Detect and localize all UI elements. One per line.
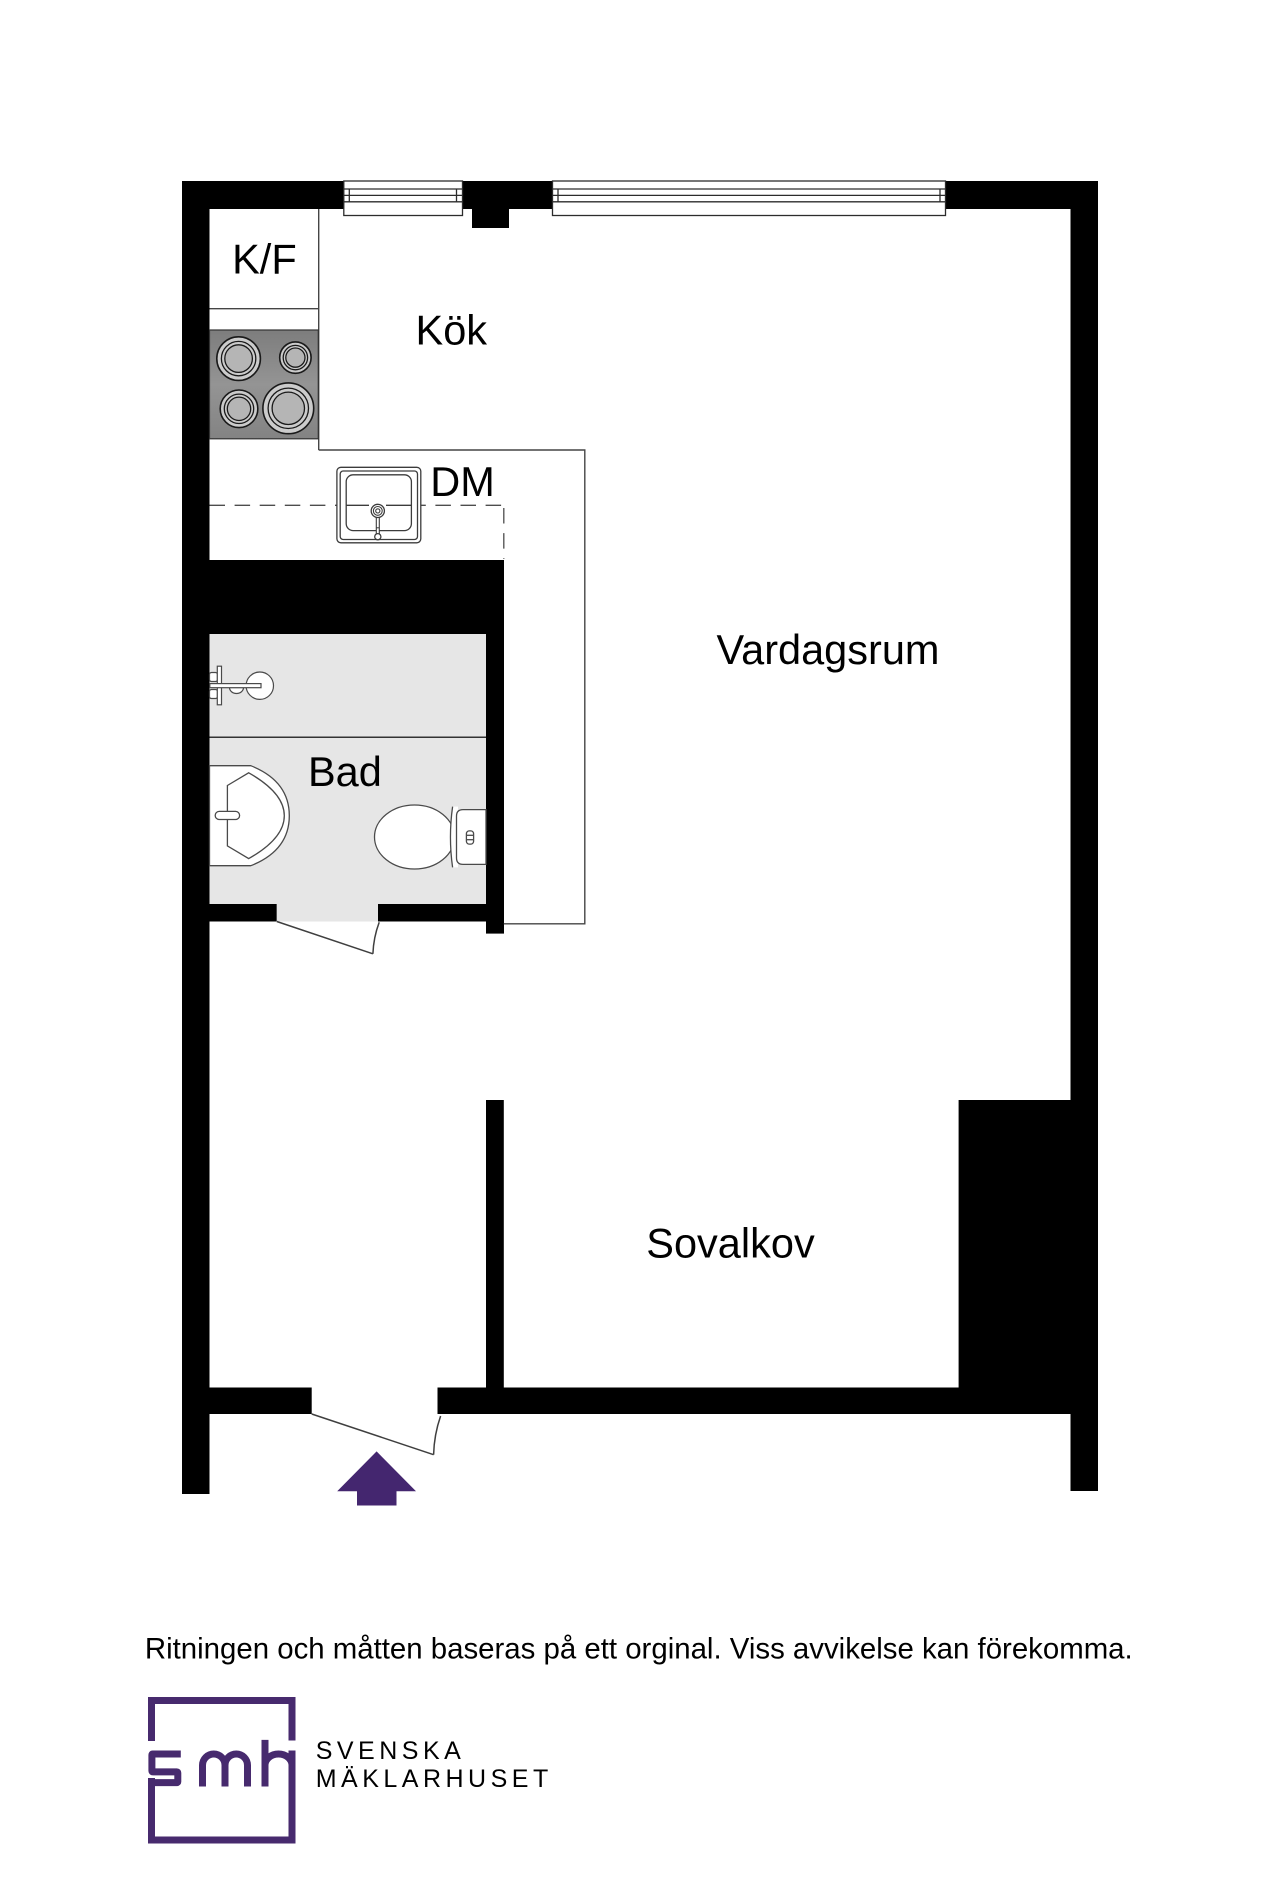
svg-text:Vardagsrum: Vardagsrum [717,626,940,673]
svg-text:DM: DM [430,458,495,505]
svg-text:Ritningen och måtten baseras p: Ritningen och måtten baseras på ett orgi… [145,1633,1133,1666]
svg-text:Sovalkov: Sovalkov [646,1219,815,1266]
svg-text:Kök: Kök [416,306,488,353]
svg-text:K/F: K/F [232,236,297,283]
svg-text:MÄKLARHUSET: MÄKLARHUSET [316,1765,553,1793]
svg-text:Bad: Bad [308,748,382,795]
svg-text:SVENSKA: SVENSKA [316,1737,466,1765]
